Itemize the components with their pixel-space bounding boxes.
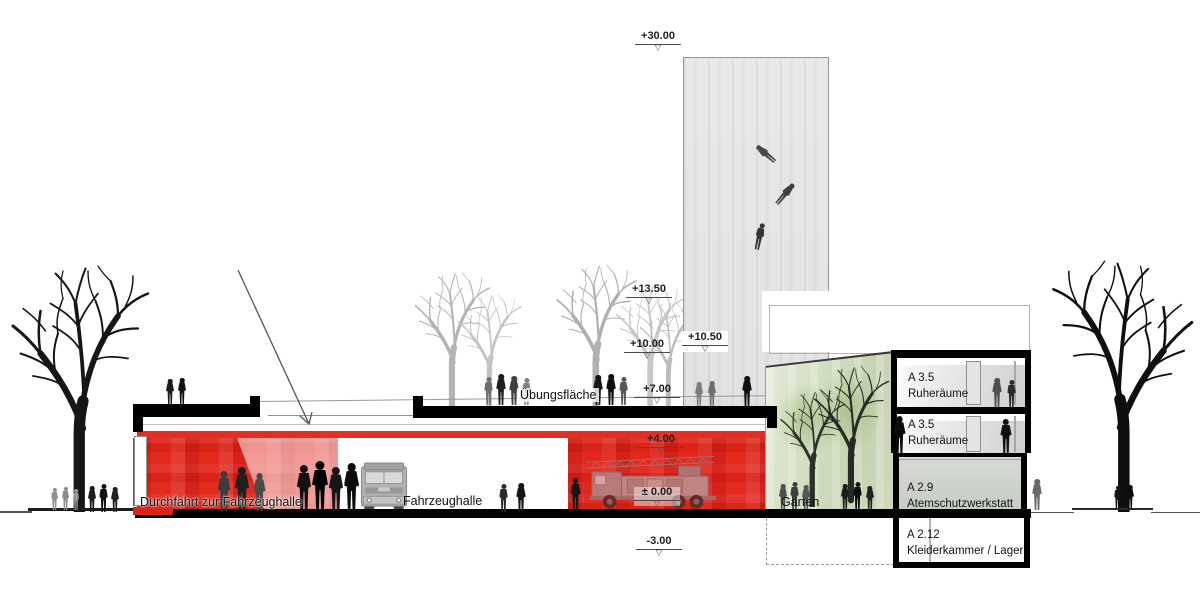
level-triangle-icon: ▽ — [638, 448, 684, 453]
roof-parapet-stub — [413, 396, 423, 406]
person-silhouette — [165, 379, 175, 404]
garten-label: Garten — [781, 495, 819, 509]
person-silhouette — [707, 381, 717, 406]
person-silhouette — [1031, 479, 1043, 510]
people-group — [498, 483, 527, 512]
person-silhouette — [1006, 380, 1017, 407]
person-silhouette — [605, 374, 617, 405]
level-marker-zero: ± 0.00▽ — [634, 487, 680, 506]
people-group — [295, 461, 361, 511]
person-silhouette — [98, 484, 109, 512]
person-silhouette — [342, 463, 361, 511]
person-silhouette — [61, 487, 70, 510]
level-marker-plus-30-00: +30.00▽ — [635, 31, 681, 50]
durchfahrt-label: Durchfahrt zur Fahrzeughalle — [140, 495, 302, 509]
room-door — [966, 361, 981, 405]
room-label-ruheraeume-lower: A 3.5Ruheräume — [908, 418, 968, 450]
person-silhouette — [1113, 486, 1122, 509]
person-silhouette — [498, 484, 509, 512]
person-silhouette — [892, 416, 907, 453]
leader-arrow — [228, 266, 320, 434]
roof-end-cap — [767, 406, 777, 428]
people-group — [694, 381, 717, 406]
person-silhouette — [483, 377, 494, 405]
person-silhouette — [72, 489, 80, 510]
person-silhouette — [1125, 485, 1135, 509]
level-marker-plus-10-00: +10.00▽ — [624, 339, 670, 358]
people-group — [165, 378, 187, 404]
level-triangle-icon: ▽ — [626, 298, 672, 303]
person-silhouette — [999, 419, 1013, 453]
uebungsflaeche-label: Übungsfläche — [517, 388, 599, 402]
hall-left-wall — [133, 404, 143, 432]
people-group — [87, 484, 120, 512]
person-silhouette — [515, 483, 527, 512]
ground-floor-slab — [135, 509, 1031, 518]
upper-volume-outline — [769, 305, 1030, 354]
section-line — [1014, 416, 1016, 452]
garden-panel: Garten — [765, 351, 893, 512]
people-group — [1113, 485, 1135, 509]
people-group — [991, 378, 1017, 407]
person-silhouette — [694, 382, 704, 406]
level-marker-minus-3-00: -3.00▽ — [636, 536, 682, 555]
person-silhouette — [87, 486, 97, 512]
level-triangle-icon: ▽ — [634, 398, 680, 403]
person-silhouette — [741, 376, 753, 406]
person-silhouette — [495, 374, 507, 405]
ground-line-right — [1031, 512, 1074, 513]
level-marker-plus-10-50: +10.50▽ — [682, 331, 728, 352]
ground-line-left — [0, 511, 32, 513]
wing-floor-slab — [891, 407, 1031, 414]
person-silhouette — [991, 378, 1003, 407]
wing-roof-slab — [891, 350, 1031, 358]
room-label-atemschutzwerkstatt: A 2.9Atemschutzwerkstatt — [907, 481, 1013, 513]
wing-right-wall — [1025, 350, 1031, 453]
person-silhouette — [569, 478, 582, 511]
room-label-kleiderkammer: A 2.12Kleiderkammer / Lager — [907, 528, 1023, 560]
level-marker-plus-7-00: +7.00▽ — [634, 384, 680, 403]
people-group — [50, 487, 80, 510]
right-street-tree-icon — [1038, 256, 1200, 512]
level-triangle-icon: ▽ — [636, 550, 682, 555]
room-label-ruheraeume-upper: A 3.5Ruheräume — [908, 371, 968, 403]
person-silhouette — [50, 488, 59, 510]
person-silhouette — [177, 378, 187, 404]
roof-slab-main — [413, 406, 777, 418]
level-triangle-icon: ▽ — [682, 346, 728, 351]
level-marker-plus-4-00: +4.00▽ — [638, 434, 684, 453]
ground-line-right — [1151, 512, 1200, 513]
basement-dashed-outline — [766, 518, 894, 565]
level-triangle-icon: ▽ — [635, 45, 681, 50]
people-group — [840, 482, 875, 510]
person-silhouette — [840, 484, 850, 510]
level-triangle-icon: ▽ — [634, 501, 680, 506]
person-silhouette — [852, 482, 863, 510]
architectural-section-drawing: Garten — [0, 0, 1200, 612]
fahrzeughalle-label: Fahrzeughalle — [403, 494, 482, 508]
level-marker-plus-13-50: +13.50▽ — [626, 284, 672, 303]
person-silhouette — [618, 377, 629, 405]
level-triangle-icon: ▽ — [624, 353, 670, 358]
room-door — [966, 416, 981, 452]
person-silhouette — [110, 487, 120, 512]
person-silhouette — [865, 486, 875, 510]
